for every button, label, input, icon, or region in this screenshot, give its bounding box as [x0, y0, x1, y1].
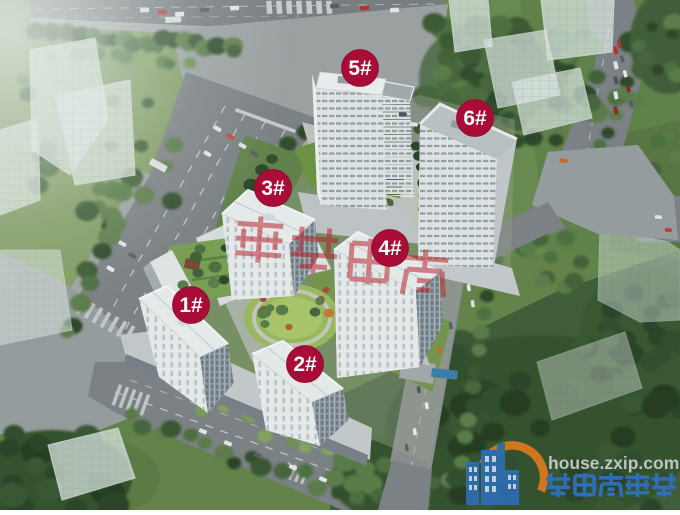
svg-text:5#: 5# — [348, 57, 372, 80]
svg-text:3#: 3# — [261, 177, 285, 200]
svg-text:1#: 1# — [179, 294, 203, 317]
svg-text:2#: 2# — [293, 353, 317, 376]
svg-text:house.zxip.com: house.zxip.com — [548, 453, 679, 473]
svg-text:6#: 6# — [463, 107, 487, 130]
svg-text:4#: 4# — [378, 237, 402, 260]
